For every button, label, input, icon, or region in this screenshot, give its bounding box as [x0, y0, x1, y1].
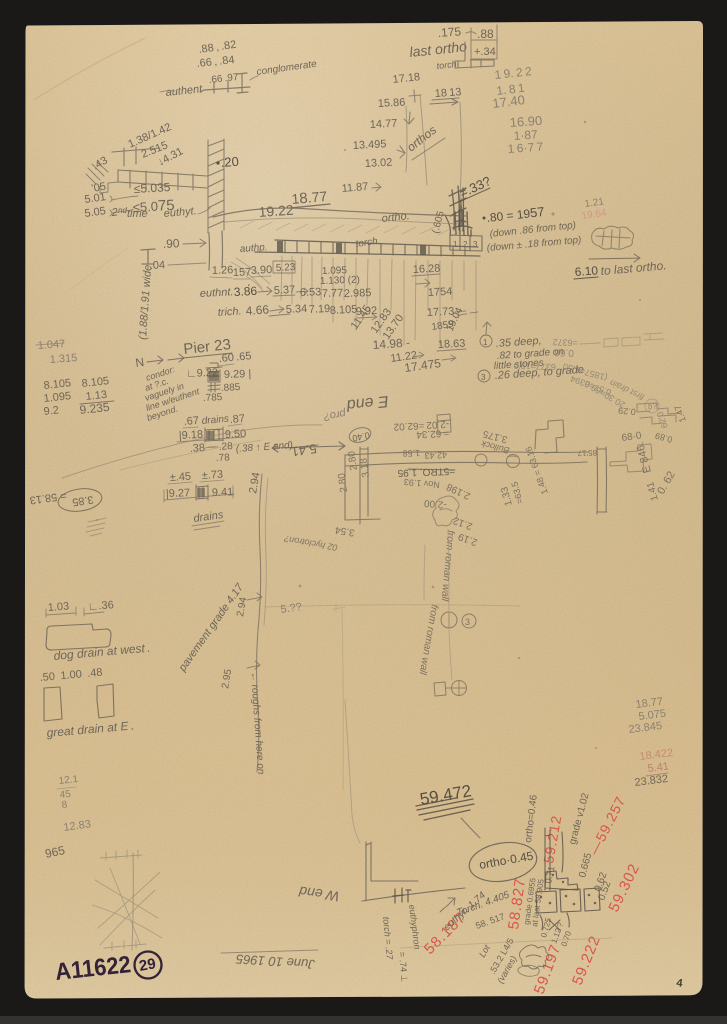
- svg-text:5.23: 5.23: [276, 262, 296, 274]
- svg-text:authp.: authp.: [239, 242, 268, 255]
- svg-text:+.34: +.34: [474, 46, 496, 58]
- svg-text:14.77: 14.77: [370, 118, 398, 131]
- svg-text:∟.36: ∟.36: [87, 599, 114, 613]
- svg-text:85’17: 85’17: [577, 448, 597, 458]
- svg-text:b?: b?: [648, 402, 657, 411]
- svg-text:-2.00: -2.00: [423, 497, 447, 510]
- svg-text:3.90: 3.90: [251, 264, 273, 277]
- svg-text:157: 157: [233, 266, 252, 279]
- svg-text:torch: torch: [436, 59, 457, 71]
- svg-text:9.2: 9.2: [43, 404, 59, 418]
- svg-text:3.8́6: 3.8́6: [233, 283, 257, 299]
- svg-text:.785: .785: [203, 392, 223, 404]
- svg-text:8.105: 8.105: [330, 304, 358, 317]
- svg-text:.67: .67: [183, 415, 199, 428]
- svg-text:13.02: 13.02: [365, 157, 393, 170]
- svg-text:7.19: 7.19: [309, 303, 331, 316]
- svg-text:7.77: 7.77: [322, 287, 344, 300]
- svg-text:1.26: 1.26: [212, 264, 234, 277]
- svg-text:.885: .885: [221, 382, 241, 394]
- svg-text:5.34: 5.34: [286, 303, 308, 316]
- svg-text:3: 3: [481, 373, 486, 382]
- svg-text:1.315: 1.315: [49, 352, 77, 366]
- svg-text:.87: .87: [229, 413, 245, 426]
- svg-text:1: 1: [483, 338, 488, 347]
- svg-text:.88: .88: [477, 27, 494, 41]
- svg-text:.78: .78: [216, 452, 231, 464]
- svg-text:≤5.035: ≤5.035: [133, 180, 171, 196]
- svg-text:13.495: 13.495: [353, 138, 387, 152]
- svg-text:=6372: =6372: [552, 337, 578, 348]
- svg-text:3: 3: [465, 617, 470, 627]
- svg-text:= 62.34: = 62.34: [416, 427, 450, 440]
- svg-text:1.130 (2): 1.130 (2): [320, 275, 360, 287]
- svg-text:2: 2: [463, 240, 468, 249]
- svg-text:time: time: [127, 208, 148, 220]
- svg-text:1: 1: [453, 240, 458, 249]
- svg-text:1.58: 1.58: [402, 448, 420, 459]
- svg-text:12.1: 12.1: [58, 774, 79, 787]
- svg-text:15.86: 15.86: [378, 97, 406, 110]
- svg-text:1 6·7 7: 1 6·7 7: [507, 140, 544, 156]
- svg-text:euthnt.: euthnt.: [200, 286, 234, 300]
- svg-text:4.66: 4.66: [245, 302, 270, 318]
- svg-text:6.10: 6.10: [574, 263, 599, 279]
- svg-text:9.41: 9.41: [212, 486, 234, 499]
- svg-text:2.985: 2.985: [344, 287, 372, 300]
- svg-text:6377=19’0: 6377=19’0: [513, 361, 556, 372]
- svg-text:6.53: 6.53: [300, 286, 322, 299]
- svg-text:0.66: 0.66: [554, 346, 574, 358]
- svg-text:.90: .90: [162, 236, 180, 251]
- svg-text:42.43: 42.43: [424, 450, 447, 461]
- svg-text:29: 29: [138, 955, 157, 975]
- svg-text:9.29 |: 9.29 |: [224, 368, 252, 381]
- svg-text:.175: .175: [437, 24, 462, 40]
- svg-text:3: 3: [473, 240, 478, 249]
- svg-text:14.98 -: 14.98 -: [372, 335, 410, 352]
- svg-text:1754: 1754: [428, 286, 453, 299]
- svg-text:.20: .20: [220, 154, 239, 170]
- svg-text:11.87: 11.87: [341, 181, 369, 195]
- svg-text:19.22: 19.22: [258, 202, 294, 220]
- svg-text:=5TRO. 1.95: =5TRO. 1.95: [397, 465, 455, 478]
- svg-text:1.03: 1.03: [47, 601, 69, 614]
- svg-text:trich.: trich.: [217, 305, 242, 319]
